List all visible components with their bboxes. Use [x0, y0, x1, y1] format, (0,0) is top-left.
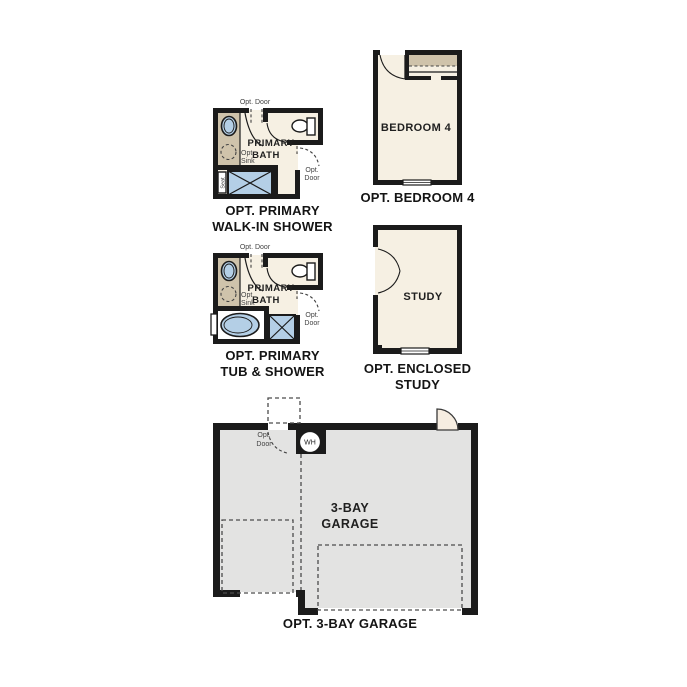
opt-door-label: Opt. Door	[240, 99, 271, 106]
room-label: BATH	[252, 295, 280, 306]
toilet-tank-icon	[307, 263, 315, 280]
wall	[457, 225, 462, 354]
wall	[263, 108, 268, 122]
wall	[405, 76, 431, 80]
room-label: STUDY	[403, 291, 443, 303]
walkin-shower-plan: Opt. Door PRIMARY BATH Opt. Sink Opt. Do…	[205, 96, 335, 206]
wall	[373, 225, 378, 247]
room-label: 3-BAY	[331, 501, 370, 515]
water-heater-label: WH	[304, 440, 316, 447]
wall	[295, 170, 300, 199]
toilet-icon	[292, 120, 308, 132]
tub-shower-caption: OPT. PRIMARY TUB & SHOWER	[190, 348, 355, 380]
wall	[273, 165, 278, 199]
wall	[457, 50, 462, 185]
wall	[441, 76, 457, 80]
toilet-icon	[292, 265, 308, 277]
seat-label: Seat	[221, 177, 227, 189]
wall	[471, 423, 478, 615]
wall	[405, 50, 462, 55]
wall	[263, 253, 323, 258]
garage-plan: WH Opt. Door 3-BAY GARAGE	[210, 390, 490, 625]
bedroom4-caption: OPT. BEDROOM 4	[340, 190, 495, 206]
opt-sink-label: Opt.	[241, 292, 254, 299]
study-plan: STUDY	[365, 220, 470, 370]
walkin-shower-caption: OPT. PRIMARY WALK-IN SHOWER	[190, 203, 355, 235]
bedroom4-plan: BEDROOM 4	[365, 45, 470, 195]
wall	[318, 108, 323, 145]
room-label: PRIMARY	[248, 138, 295, 149]
wall	[263, 253, 268, 267]
opt-sink-label: Sink	[241, 300, 255, 307]
garage-floor	[305, 586, 471, 608]
wall	[373, 225, 462, 230]
opt-door-label: Door	[256, 441, 272, 448]
wall	[318, 253, 323, 290]
wall	[213, 108, 218, 199]
room-label: BEDROOM 4	[381, 122, 452, 134]
wall	[373, 50, 378, 185]
study-caption: OPT. ENCLOSED STUDY	[340, 361, 495, 393]
wall	[462, 608, 478, 615]
optional-door-swing-icon	[300, 293, 319, 311]
wall	[213, 108, 249, 113]
wall	[213, 423, 220, 597]
room-label: PRIMARY	[248, 283, 295, 294]
optional-door-swing-icon	[300, 148, 319, 166]
opt-door-label: Door	[304, 175, 320, 182]
window-icon	[211, 314, 217, 335]
wall	[288, 423, 437, 430]
bedroom-floor	[375, 55, 457, 180]
wall	[213, 165, 278, 170]
wall	[263, 108, 323, 113]
opt-door-label: Opt.	[257, 432, 270, 439]
wall	[213, 423, 268, 430]
opt-sink-label: Sink	[241, 158, 255, 165]
floor-plan-canvas: Opt. Door PRIMARY BATH Opt. Sink Opt. Do…	[0, 0, 687, 687]
room-label: GARAGE	[321, 517, 378, 531]
opt-door-label: Opt. Door	[240, 244, 271, 251]
closet-shelf-icon	[409, 55, 457, 66]
garage-caption: OPT. 3-BAY GARAGE	[262, 616, 438, 632]
wall	[298, 608, 318, 615]
wall	[405, 55, 409, 79]
opt-door-label: Opt.	[305, 312, 318, 319]
wall	[213, 253, 249, 258]
optional-landing-outline	[268, 398, 300, 423]
tub-shower-plan: Opt. Door PRIMARY BATH Opt. Sink Opt. Do…	[205, 241, 335, 351]
opt-door-label: Opt.	[305, 167, 318, 174]
room-label: BATH	[252, 150, 280, 161]
opt-door-label: Door	[304, 320, 320, 327]
wall	[373, 345, 382, 354]
toilet-tank-icon	[307, 118, 315, 135]
door-swing-icon	[437, 409, 458, 430]
opt-sink-label: Opt.	[241, 150, 254, 157]
